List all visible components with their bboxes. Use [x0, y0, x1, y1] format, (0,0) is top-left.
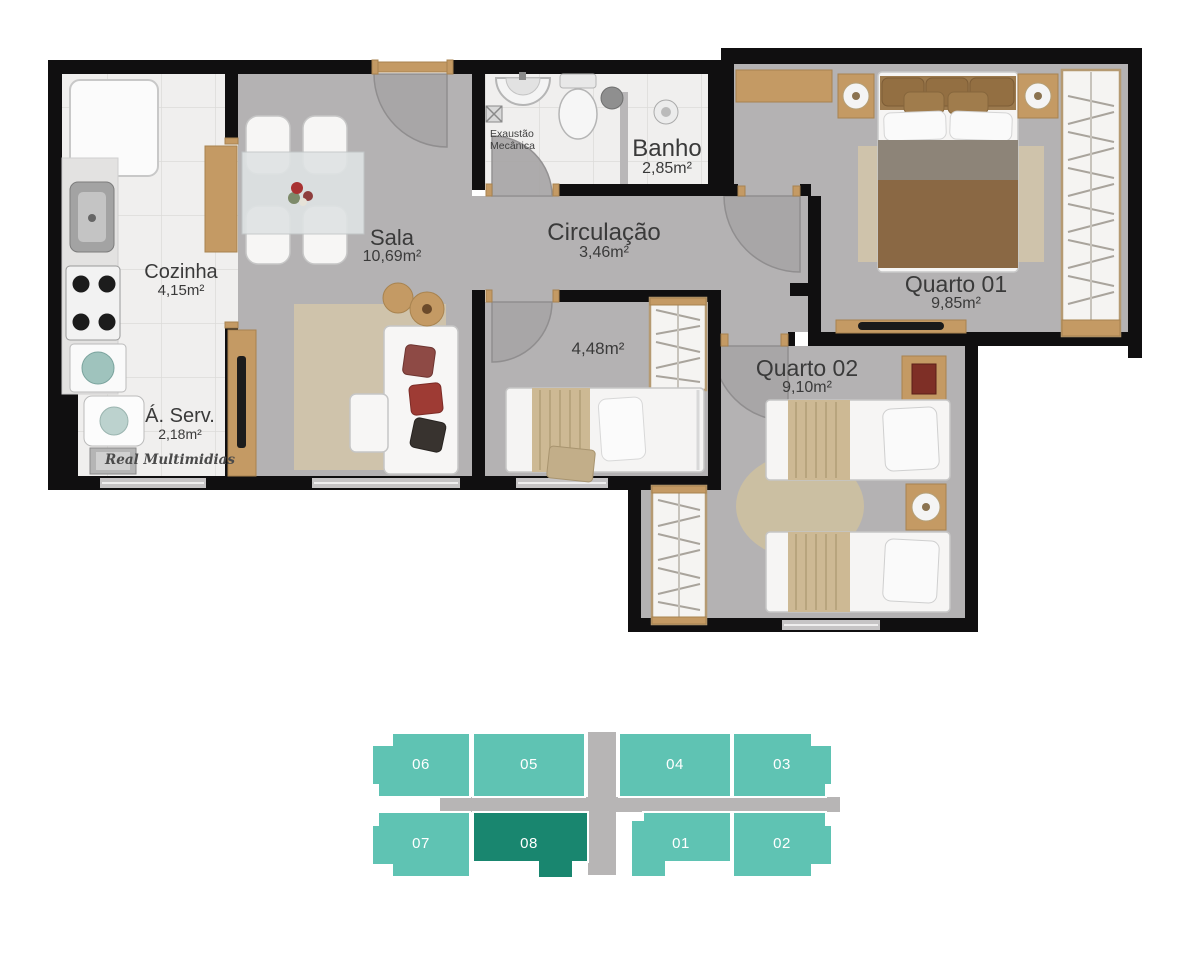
tv — [858, 322, 944, 330]
wardrobe — [1062, 70, 1120, 336]
desk — [902, 356, 946, 402]
floorplan-drawing — [0, 0, 1200, 966]
chaise — [350, 394, 388, 452]
keyplan-label-02: 02 — [773, 835, 791, 852]
washer — [84, 396, 144, 446]
stove — [66, 266, 120, 340]
keyplan-label-03: 03 — [773, 756, 791, 773]
label-exaustao: Exaustão Mecânica — [490, 128, 535, 152]
dining-table — [242, 152, 364, 234]
kitchen-sink — [70, 182, 114, 252]
label-aserv: Á. Serv. 2,18m² — [145, 406, 215, 442]
keyplan-label-05: 05 — [520, 756, 538, 773]
nightstand — [906, 484, 946, 530]
sideboard — [205, 146, 237, 252]
side-table — [383, 283, 413, 313]
pillow — [882, 407, 939, 472]
nightstand — [1018, 74, 1058, 118]
entry-sill — [378, 62, 447, 72]
shower-partition — [620, 92, 628, 184]
pillow — [402, 344, 436, 378]
window — [782, 620, 880, 630]
pillow — [598, 397, 646, 462]
exhaust-icon — [486, 106, 502, 122]
pillow — [884, 111, 947, 141]
keyplan-label-06: 06 — [412, 756, 430, 773]
floorplan-page: Cozinha 4,15m² Á. Serv. 2,18m² Sala 10,6… — [0, 0, 1200, 966]
window — [100, 478, 206, 488]
pillow — [950, 111, 1013, 141]
keyplan-label-08: 08 — [520, 835, 538, 852]
wardrobe — [650, 298, 706, 390]
dresser — [836, 320, 966, 333]
tv — [237, 356, 246, 448]
label-sala: Sala 10,69m² — [363, 226, 422, 266]
single-bed — [506, 388, 704, 482]
window — [312, 478, 460, 488]
keyplan-corridor — [440, 797, 840, 812]
double-bed — [878, 72, 1018, 272]
keyplan — [372, 732, 840, 878]
single-bed — [766, 400, 950, 480]
shower-drain — [654, 100, 678, 124]
dining-set — [242, 116, 364, 264]
label-cozinha: Cozinha 4,15m² — [144, 262, 217, 299]
label-quarto1: Quarto 01 9,85m² — [905, 272, 1007, 313]
toilet — [559, 74, 597, 139]
nightstand — [838, 74, 874, 118]
label-reversivel-area: 4,48m² — [572, 340, 625, 358]
pillow — [409, 382, 444, 415]
watermark: Real Multimidias — [105, 452, 235, 468]
desk-object — [912, 364, 936, 394]
label-quarto2: Quarto 02 9,10m² — [756, 356, 858, 397]
label-banho: Banho 2,85m² — [632, 136, 701, 178]
shelf — [736, 70, 832, 102]
pillow — [882, 539, 939, 604]
microwave — [70, 344, 126, 392]
keyplan-label-07: 07 — [412, 835, 430, 852]
single-bed — [766, 532, 950, 612]
keyplan-label-04: 04 — [666, 756, 684, 773]
keyplan-label-01: 01 — [672, 835, 690, 852]
wardrobe — [652, 486, 706, 624]
label-circulacao: Circulação 3,46m² — [547, 220, 660, 262]
pillow — [409, 417, 447, 453]
waste-bin — [601, 87, 623, 109]
